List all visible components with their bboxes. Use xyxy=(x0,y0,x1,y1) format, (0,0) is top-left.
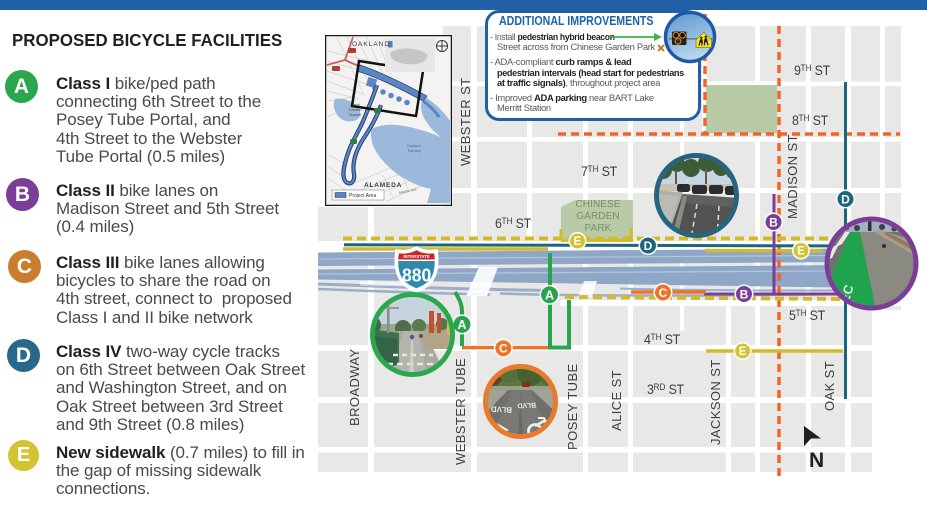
svg-text:Square: Square xyxy=(349,113,361,117)
svg-text:BLVD: BLVD xyxy=(517,401,536,409)
svg-text:B: B xyxy=(769,215,778,229)
svg-text:C: C xyxy=(659,286,668,300)
svg-text:INTERSTATE: INTERSTATE xyxy=(403,254,429,259)
svg-text:C: C xyxy=(499,342,508,356)
svg-text:Jack: Jack xyxy=(352,103,360,107)
svg-text:D: D xyxy=(644,239,653,253)
svg-text:Oakland: Oakland xyxy=(407,144,421,148)
svg-text:A: A xyxy=(457,318,466,332)
svg-text:Estuary: Estuary xyxy=(408,149,421,153)
svg-text:London: London xyxy=(349,108,362,112)
svg-text:D: D xyxy=(841,192,850,206)
svg-text:E: E xyxy=(797,246,805,258)
svg-text:N: N xyxy=(809,449,824,472)
svg-text:B: B xyxy=(740,287,749,301)
svg-text:ALAMEDA: ALAMEDA xyxy=(364,182,402,189)
svg-text:E: E xyxy=(739,346,747,358)
svg-text:BLVD: BLVD xyxy=(490,404,512,414)
svg-text:A: A xyxy=(545,288,554,302)
svg-text:880: 880 xyxy=(402,265,431,286)
svg-text:E: E xyxy=(574,236,582,248)
svg-text:OAKLAND: OAKLAND xyxy=(352,41,390,48)
svg-text:Project Area: Project Area xyxy=(349,193,376,199)
